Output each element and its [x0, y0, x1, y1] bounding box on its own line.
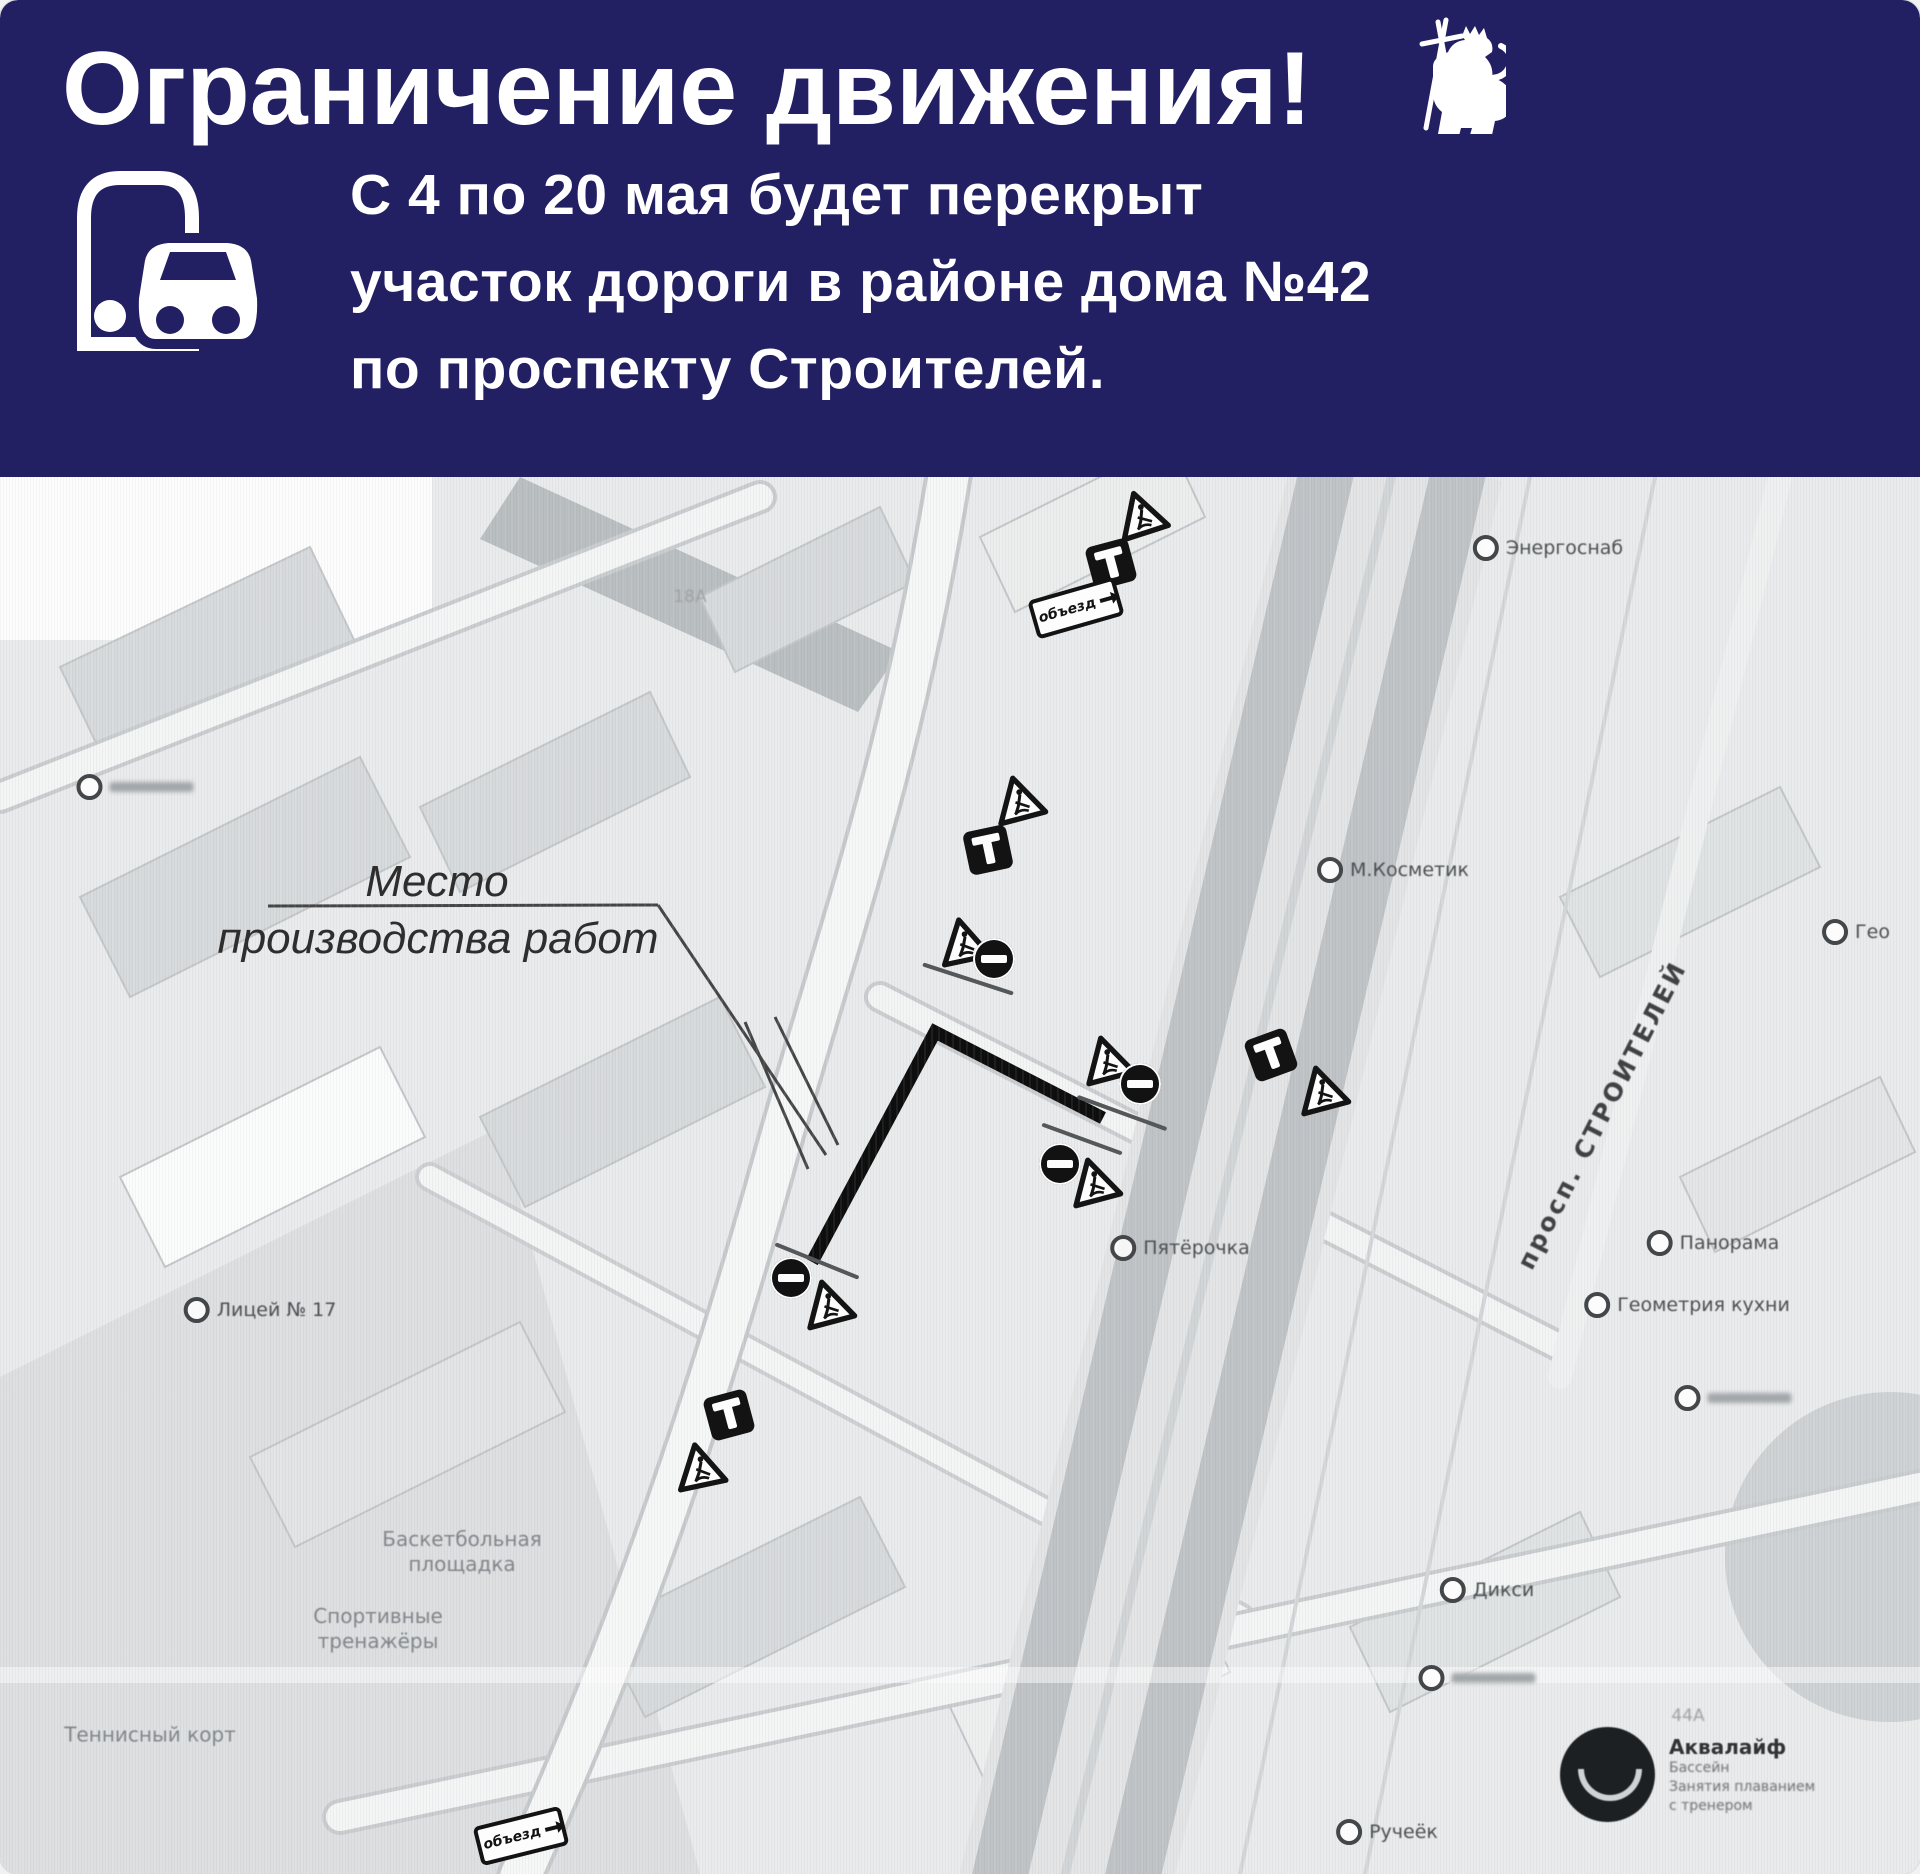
poi-diksi: Дикси: [1440, 1577, 1534, 1603]
poi-energosnab: Энергоснаб: [1473, 535, 1623, 561]
poi-unlabeled-1: [1675, 1385, 1792, 1411]
roadworks-warning-sign: [668, 1436, 731, 1494]
poi-energosnab-label: Энергоснаб: [1506, 537, 1623, 559]
poi-licey-17-label: Лицей № 17: [217, 1299, 337, 1321]
label-tennis: Теннисный корт: [64, 1723, 236, 1748]
no-entry-sign: [1119, 1063, 1161, 1105]
poi-circle-icon: [1675, 1385, 1701, 1411]
house-number: 18А: [673, 587, 706, 607]
dead-end-sign: [702, 1388, 756, 1442]
poi-rucheyok-label: Ручеёк: [1369, 1821, 1438, 1843]
announcement-line-2: участок дороги в районе дома №42: [350, 239, 1371, 326]
house-number: 44А: [1671, 1706, 1704, 1726]
poi-licey-17: Лицей № 17: [184, 1297, 337, 1323]
poi-circle-icon: [1419, 1665, 1445, 1691]
aqualife-line-2: Занятия плаванием: [1669, 1778, 1815, 1797]
traffic-restriction-poster: Ограничение движения! С 4 по 20 мая буде…: [0, 0, 1920, 1874]
aqualife-line-3: с тренером: [1669, 1797, 1815, 1816]
detour-arrow-icon: [1100, 595, 1114, 602]
poi-geo-label: Гео: [1855, 921, 1890, 943]
detour-arrow-icon: [545, 1825, 559, 1832]
poi-unlabeled-3: [77, 774, 194, 800]
roadworks-warning-sign: [986, 768, 1051, 828]
illegible-label: [1452, 1673, 1536, 1683]
poi-circle-icon: [1584, 1292, 1610, 1318]
work-zone-callout-line2: производства работ: [217, 914, 658, 964]
vladimir-lion-emblem: [1402, 14, 1506, 134]
roadworks-warning-sign: [1107, 482, 1173, 544]
poi-m-kosmetik: М.Косметик: [1317, 857, 1469, 883]
poi-circle-icon: [77, 774, 103, 800]
poi-m-kosmetik-label: М.Косметик: [1350, 859, 1469, 881]
aqualife-name: Аквалайф: [1669, 1735, 1815, 1759]
announcement-line-1: С 4 по 20 мая будет перекрыт: [350, 152, 1371, 239]
label-trenazhery: Спортивныетренажёры: [313, 1604, 443, 1654]
poi-circle-icon: [184, 1297, 210, 1323]
map-label-layer: Место производства работ просп. СТРОИТЕЛ…: [0, 477, 1920, 1874]
aqualife-logo-icon: [1560, 1727, 1655, 1822]
roadworks-warning-sign: [1289, 1058, 1354, 1118]
poi-circle-icon: [1473, 535, 1499, 561]
announcement-line-3: по проспекту Строителей.: [350, 326, 1371, 413]
poi-geo: Гео: [1822, 919, 1890, 945]
aqualife-poi-block: Аквалайф Бассейн Занятия плаванием с тре…: [1560, 1727, 1815, 1822]
bus-and-car-icon: [68, 148, 268, 353]
avenue-name-label: просп. СТРОИТЕЛЕЙ: [1511, 956, 1692, 1274]
poi-panorama: Панорама: [1647, 1230, 1780, 1256]
illegible-label: [110, 782, 194, 792]
no-entry-sign: [973, 938, 1015, 980]
poi-circle-icon: [1336, 1819, 1362, 1845]
poi-unlabeled-2: [1419, 1665, 1536, 1691]
poi-pyaterochka: Пятёрочка: [1110, 1235, 1250, 1261]
illegible-label: [1708, 1393, 1792, 1403]
label-basketball: Баскетбольнаяплощадка: [382, 1527, 542, 1577]
poi-circle-icon: [1647, 1230, 1673, 1256]
street-map: Место производства работ просп. СТРОИТЕЛ…: [0, 477, 1920, 1874]
poi-circle-icon: [1110, 1235, 1136, 1261]
detour-plate-sign: объезд: [1027, 576, 1125, 639]
poi-pyaterochka-label: Пятёрочка: [1143, 1237, 1250, 1259]
sign-post-bar: [1077, 1095, 1168, 1131]
aqualife-line-1: Бассейн: [1669, 1759, 1815, 1778]
poi-circle-icon: [1440, 1577, 1466, 1603]
announcement-text: С 4 по 20 мая будет перекрыт участок дор…: [350, 152, 1371, 413]
detour-plate-sign: объезд: [472, 1806, 569, 1867]
dead-end-sign: [962, 824, 1014, 876]
header-banner: Ограничение движения! С 4 по 20 мая буде…: [0, 0, 1920, 477]
poi-panorama-label: Панорама: [1680, 1232, 1780, 1254]
poi-geometriya-kuhni: Геометрия кухни: [1584, 1292, 1790, 1318]
poi-rucheyok: Ручеёк: [1336, 1819, 1438, 1845]
poi-geometriya-kuhni-label: Геометрия кухни: [1617, 1294, 1790, 1316]
poi-diksi-label: Дикси: [1473, 1579, 1534, 1601]
poi-circle-icon: [1317, 857, 1343, 883]
page-title: Ограничение движения!: [62, 30, 1312, 149]
work-zone-callout-line1: Место: [365, 857, 508, 907]
poi-circle-icon: [1822, 919, 1848, 945]
